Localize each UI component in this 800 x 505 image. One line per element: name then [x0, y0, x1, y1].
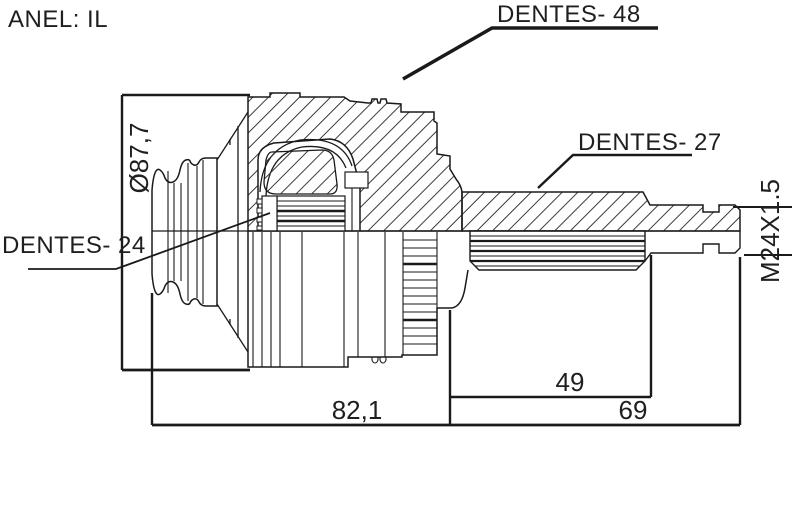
callout-dentes-27: DENTES- 27 [578, 129, 722, 156]
dim-label-49: 49 [556, 367, 585, 397]
dim-label-thread: M24X1.5 [755, 179, 785, 283]
ball-section [264, 150, 337, 194]
callout-dentes-48: DENTES- 48 [497, 1, 641, 28]
dim-label-821: 82,1 [332, 395, 383, 425]
ring-note-label: ANEL: IL [8, 6, 108, 33]
cage-step-block [345, 172, 368, 188]
technical-drawing-canvas: ANEL: IL DENTES- 48 DENTES- 27 DENTES- 2… [0, 0, 800, 505]
cv-joint-drawing: ANEL: IL DENTES- 48 DENTES- 27 DENTES- 2… [0, 0, 800, 505]
shaft-spline-stripes [466, 236, 650, 266]
dim-label-69: 69 [619, 395, 648, 425]
callout-dentes-24: DENTES- 24 [2, 232, 146, 259]
dim-label-diameter: Ø87,7 [124, 123, 154, 194]
